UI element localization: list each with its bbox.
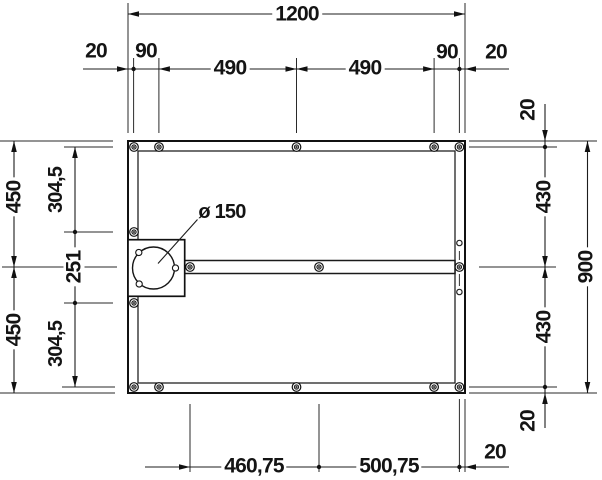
dim-bottom-span-left: 460,75 xyxy=(221,456,286,477)
screw-icon xyxy=(130,143,139,152)
dim-top-span-right: 490 xyxy=(346,58,385,79)
screw-icon xyxy=(155,383,164,392)
screw-icon xyxy=(455,143,464,152)
screw-icon xyxy=(155,143,164,152)
drain-diameter-label: ø 150 xyxy=(198,202,245,222)
dim-left-half-lower: 450 xyxy=(4,311,25,350)
screw-icon xyxy=(430,383,439,392)
dim-bottom-edge-right: 20 xyxy=(484,442,506,463)
dim-top-edge-left: 20 xyxy=(85,41,107,62)
screw-icon xyxy=(292,383,301,392)
screw-icon xyxy=(315,263,324,272)
screw-icon xyxy=(130,228,139,237)
screw-icon xyxy=(186,263,195,272)
dim-left-drain-span: 251 xyxy=(64,248,85,287)
dim-total-height: 900 xyxy=(576,248,597,287)
dim-total-width: 1200 xyxy=(272,4,322,25)
dim-left-inner-lower: 304,5 xyxy=(46,321,66,367)
dim-top-offset-left: 90 xyxy=(135,41,157,62)
drawing-canvas xyxy=(0,0,602,480)
dim-top-offset-right: 90 xyxy=(436,42,458,63)
screw-icon xyxy=(430,143,439,152)
hole-icon xyxy=(457,289,462,294)
dim-top-span-left: 490 xyxy=(211,58,250,79)
dim-left-half-upper: 450 xyxy=(4,178,25,217)
screw-icon xyxy=(292,143,301,152)
technical-drawing: 1200 20 90 490 490 90 20 450 450 304,5 2… xyxy=(0,0,602,480)
screw-icon xyxy=(130,383,139,392)
screw-icon xyxy=(455,263,464,272)
dim-right-inner-lower: 430 xyxy=(534,308,555,347)
dim-right-inner-upper: 430 xyxy=(534,178,555,217)
dim-top-edge-right: 20 xyxy=(485,42,507,63)
hole-icon xyxy=(457,240,462,245)
screw-icon xyxy=(130,299,139,308)
dim-right-edge-bottom: 20 xyxy=(518,410,539,432)
dim-left-inner-upper: 304,5 xyxy=(46,167,66,213)
dim-bottom-span-right: 500,75 xyxy=(356,456,421,477)
screw-icon xyxy=(455,383,464,392)
dim-right-edge-top: 20 xyxy=(518,99,539,121)
